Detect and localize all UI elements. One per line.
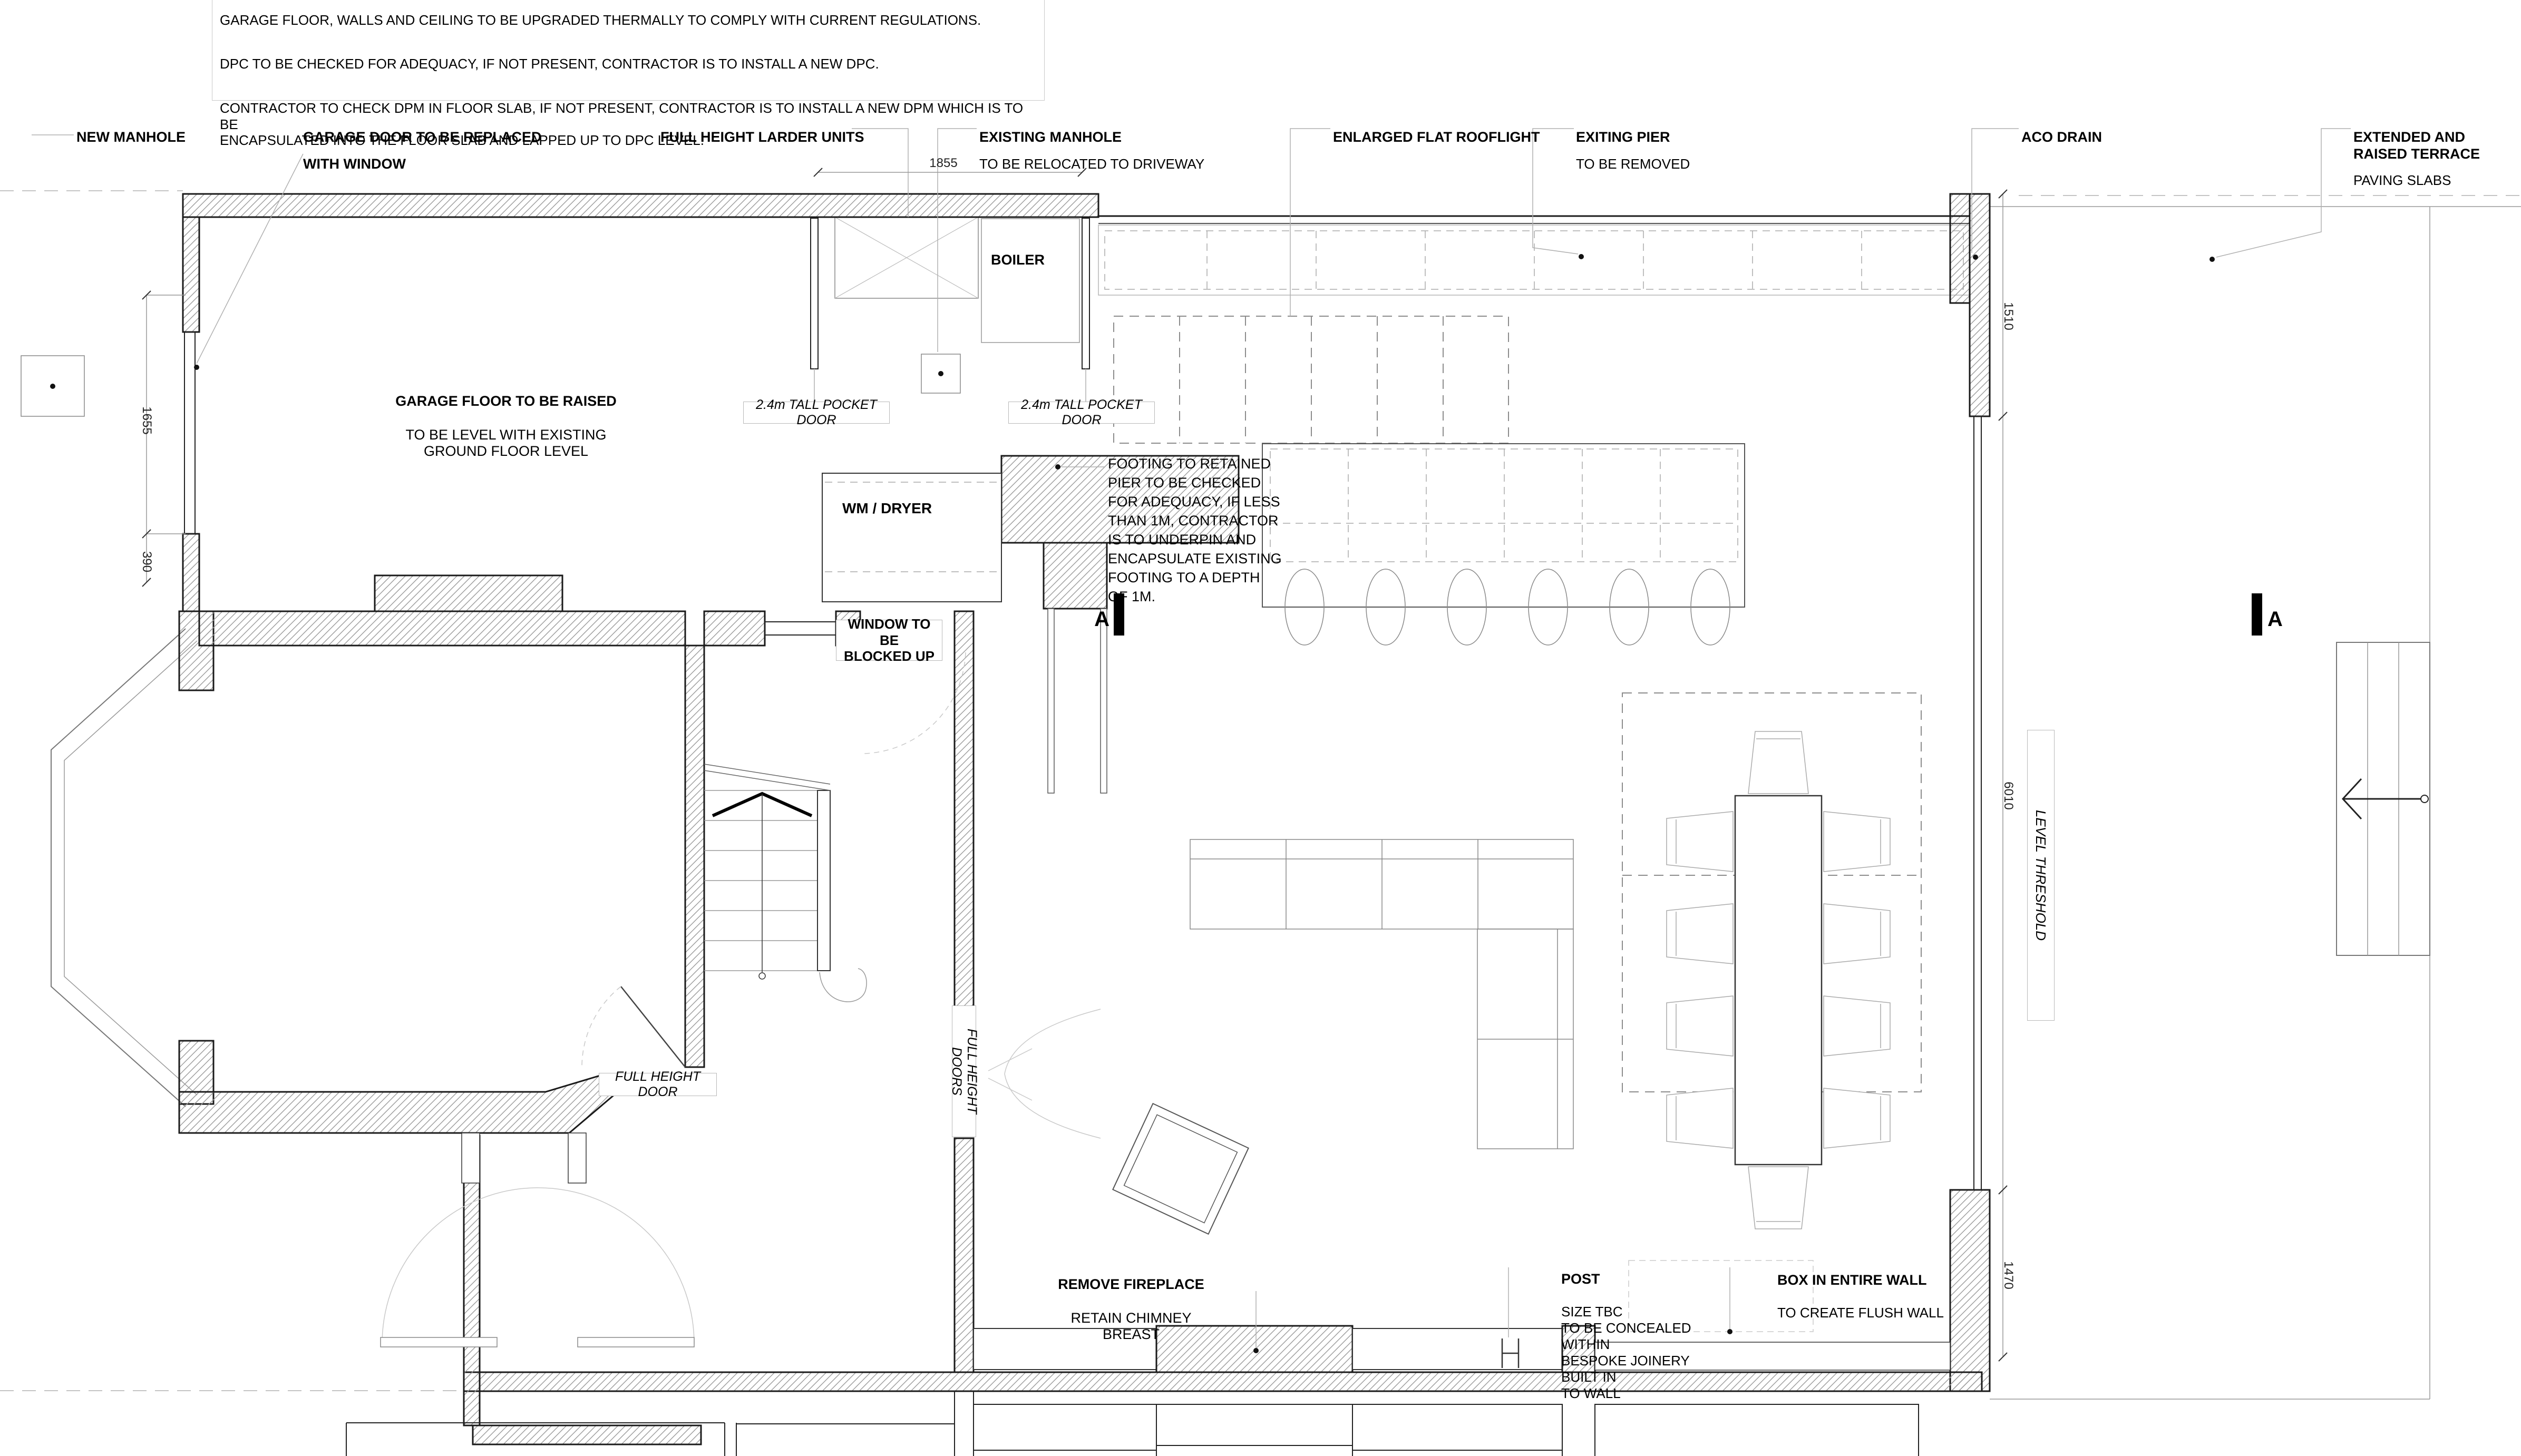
boiler-label: BOILER bbox=[991, 252, 1045, 269]
box-in-subtitle: TO CREATE FLUSH WALL bbox=[1777, 1305, 1957, 1321]
callout-title: EXISTING MANHOLE bbox=[979, 129, 1204, 146]
note-line: DPC TO BE CHECKED FOR ADEQUACY, IF NOT P… bbox=[212, 56, 1044, 72]
fireplace bbox=[1113, 1103, 1248, 1234]
dimension-left-lower: 390 bbox=[139, 536, 154, 587]
dimension-left-upper: 1655 bbox=[139, 392, 154, 449]
callout-exiting-pier: EXITING PIER TO BE REMOVED bbox=[1576, 119, 1690, 182]
callout-subtitle: TO BE RELOCATED TO DRIVEWAY bbox=[979, 156, 1204, 172]
pocket-door-label-left: 2.4m TALL POCKET DOOR bbox=[743, 402, 890, 424]
callout-title: ACO DRAIN bbox=[2021, 129, 2102, 146]
callout-terrace: EXTENDED AND RAISED TERRACE PAVING SLABS bbox=[2353, 119, 2521, 199]
garage-floor-title: GARAGE FLOOR TO BE RAISED bbox=[389, 393, 623, 410]
dimension-lines bbox=[142, 168, 2007, 1361]
callout-rooflight: ENLARGED FLAT ROOFLIGHT bbox=[1333, 119, 1540, 156]
door-leaf bbox=[621, 986, 685, 1067]
callout-title: ENLARGED FLAT ROOFLIGHT bbox=[1333, 129, 1540, 146]
callout-new-manhole: NEW MANHOLE bbox=[76, 119, 186, 156]
remove-fireplace-title: REMOVE FIREPLACE bbox=[1040, 1276, 1222, 1293]
general-notes: GARAGE FLOOR, WALLS AND CEILING TO BE UP… bbox=[212, 0, 1045, 101]
garage-floor-subtitle: TO BE LEVEL WITH EXISTING GROUND FLOOR L… bbox=[389, 427, 623, 461]
wm-dryer-closet bbox=[822, 473, 1001, 602]
footing-note: FOOTING TO RETAINED PIER TO BE CHECKED F… bbox=[1108, 454, 1287, 606]
garage-floor-label: GARAGE FLOOR TO BE RAISED TO BE LEVEL WI… bbox=[389, 376, 623, 477]
window-blocked-label: WINDOW TO BE BLOCKED UP bbox=[836, 620, 942, 661]
full-height-door-label: FULL HEIGHT DOOR bbox=[599, 1073, 717, 1096]
floor-plan-sheet: .wall{fill:url(#h);stroke:#1a1a1a;stroke… bbox=[0, 0, 2521, 1456]
remove-fireplace-label: REMOVE FIREPLACE RETAIN CHIMNEY BREAST bbox=[1040, 1259, 1222, 1360]
stair-direction-arrow bbox=[2343, 779, 2423, 819]
sofa bbox=[1190, 839, 1573, 1149]
floor-plan-linework: .wall{fill:url(#h);stroke:#1a1a1a;stroke… bbox=[0, 0, 2521, 1456]
wm-dryer-label: WM / DRYER bbox=[842, 500, 932, 517]
dimension-right-mid: 6010 bbox=[2001, 767, 2016, 825]
box-in-title: BOX IN ENTIRE WALL bbox=[1777, 1272, 1957, 1289]
section-marker-right bbox=[2252, 593, 2262, 636]
pocket-doors bbox=[811, 218, 1089, 402]
callout-subtitle: PAVING SLABS bbox=[2353, 172, 2521, 189]
note-line: GARAGE FLOOR, WALLS AND CEILING TO BE UP… bbox=[212, 12, 1044, 28]
level-threshold-label: LEVEL THRESHOLD bbox=[2027, 730, 2055, 1021]
callout-title: EXITING PIER bbox=[1576, 129, 1690, 146]
callout-garage-door: GARAGE DOOR TO BE REPLACED WITH WINDOW bbox=[303, 119, 542, 182]
callout-title: EXTENDED AND RAISED TERRACE bbox=[2353, 129, 2521, 163]
terrace bbox=[1990, 207, 2521, 1399]
callout-subtitle: WITH WINDOW bbox=[303, 156, 542, 173]
callout-title: NEW MANHOLE bbox=[76, 129, 186, 146]
hall-double-doors bbox=[381, 1133, 694, 1347]
callout-title: GARAGE DOOR TO BE REPLACED bbox=[303, 129, 542, 146]
dining-set bbox=[1667, 731, 1890, 1229]
kitchen-counter-run bbox=[1098, 225, 1970, 295]
section-label-right: A bbox=[2267, 607, 2299, 632]
post-title: POST bbox=[1561, 1271, 1719, 1287]
kitchen-island bbox=[1262, 444, 1745, 645]
post-body: SIZE TBC TO BE CONCEALED WITHIN BESPOKE … bbox=[1561, 1304, 1719, 1402]
larder-units bbox=[835, 217, 1079, 343]
box-in-label: BOX IN ENTIRE WALL TO CREATE FLUSH WALL bbox=[1777, 1256, 1957, 1337]
remove-fireplace-subtitle: RETAIN CHIMNEY BREAST bbox=[1040, 1310, 1222, 1344]
site-boundary-lines bbox=[0, 191, 2521, 1391]
boiler-cupboard bbox=[981, 219, 1079, 343]
callout-subtitle: TO BE REMOVED bbox=[1576, 156, 1690, 172]
post-label: POST SIZE TBC TO BE CONCEALED WITHIN BES… bbox=[1561, 1255, 1719, 1418]
callout-title: FULL HEIGHT LARDER UNITS bbox=[660, 129, 864, 146]
dining-table bbox=[1735, 796, 1822, 1165]
callout-larder: FULL HEIGHT LARDER UNITS bbox=[660, 119, 864, 156]
dimension-top: 1855 bbox=[914, 156, 972, 171]
full-height-doors-label: FULL HEIGHT DOORS bbox=[952, 1005, 976, 1137]
bay-window bbox=[51, 611, 213, 1107]
corridor-doors bbox=[988, 609, 1107, 1138]
dimension-right-lower: 1470 bbox=[2001, 1246, 2016, 1304]
callout-aco-drain: ACO DRAIN bbox=[2021, 119, 2102, 156]
section-label-left: A bbox=[1081, 607, 1109, 632]
staircase bbox=[582, 652, 966, 1067]
pocket-door-label-right: 2.4m TALL POCKET DOOR bbox=[1008, 402, 1155, 424]
callout-existing-manhole: EXISTING MANHOLE TO BE RELOCATED TO DRIV… bbox=[979, 119, 1204, 182]
dimension-right-upper: 1510 bbox=[2001, 287, 2016, 345]
